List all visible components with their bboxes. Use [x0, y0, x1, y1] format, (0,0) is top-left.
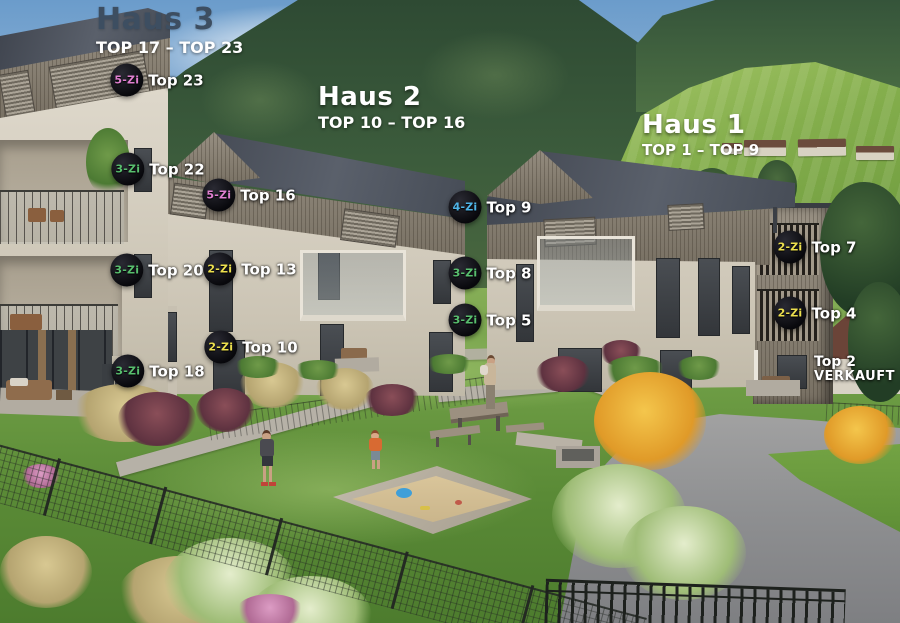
- toddler-figure: [364, 430, 388, 470]
- window: [656, 258, 680, 338]
- purple-shrub: [536, 356, 590, 392]
- haus-3-title: Haus 3: [96, 4, 243, 36]
- visualization-canvas: Haus 3 TOP 17 – TOP 23 Haus 2 TOP 10 – T…: [0, 0, 900, 623]
- haus-1-title: Haus 1: [642, 112, 759, 139]
- yellow-bush: [824, 406, 896, 464]
- unit-rooms-badge: 2-Zi: [774, 297, 807, 330]
- unit-label: Top 5: [487, 311, 532, 329]
- bench-leg: [436, 437, 439, 447]
- unit-rooms-badge: 3-Zi: [449, 257, 482, 290]
- figure-leg: [377, 460, 380, 469]
- purple-shrub: [118, 392, 196, 446]
- unit-marker-top-18[interactable]: 3-Zi Top 18: [111, 355, 204, 388]
- figure-shorts: [262, 456, 273, 466]
- haus-1-header: Haus 1 TOP 1 – TOP 9: [642, 112, 759, 159]
- balcony-chair: [28, 208, 46, 222]
- purple-shrub: [364, 384, 420, 416]
- unit-label: Top 9: [487, 198, 532, 216]
- sold-unit-label: Top 2: [814, 354, 895, 370]
- window: [698, 258, 720, 336]
- hedge: [676, 356, 722, 380]
- unit-rooms-badge-text: 2-Zi: [778, 307, 803, 320]
- haus-1-range: TOP 1 – TOP 9: [642, 143, 759, 159]
- pergola-post: [754, 350, 758, 382]
- haus-3-range: TOP 17 – TOP 23: [96, 40, 243, 57]
- glass-balcony: [300, 250, 406, 321]
- table-leg: [496, 416, 500, 431]
- unit-rooms-badge: 5-Zi: [202, 179, 235, 212]
- adult-with-baby-figure: [477, 355, 501, 415]
- unit-rooms-badge: 3-Zi: [111, 355, 144, 388]
- unit-rooms-badge: 2-Zi: [774, 231, 807, 264]
- unit-label: Top 8: [487, 264, 532, 282]
- unit-marker-top-23[interactable]: 5-Zi Top 23: [110, 64, 203, 97]
- unit-rooms-badge-text: 2-Zi: [207, 263, 232, 276]
- bench-leg: [468, 435, 471, 445]
- toy-shovel: [420, 506, 430, 510]
- farmhouse: [798, 139, 846, 157]
- unit-rooms-badge-text: 3-Zi: [453, 267, 478, 280]
- figure-leg: [269, 466, 272, 482]
- fence-post: [149, 487, 167, 545]
- unit-rooms-badge: 5-Zi: [110, 64, 143, 97]
- unit-marker-top-13[interactable]: 2-Zi Top 13: [203, 253, 296, 286]
- coffee-table: [56, 390, 72, 400]
- unit-label: Top 22: [149, 160, 204, 178]
- unit-marker-top-4[interactable]: 2-Zi Top 4: [774, 297, 857, 330]
- unit-rooms-badge: 2-Zi: [204, 331, 237, 364]
- fence-post: [265, 518, 283, 576]
- unit-label: Top 7: [812, 238, 857, 256]
- unit-rooms-badge: 3-Zi: [111, 153, 144, 186]
- yellow-bush: [594, 372, 706, 470]
- sofa-cushion: [10, 378, 28, 386]
- haus-2-range: TOP 10 – TOP 16: [318, 115, 465, 132]
- toy-red: [455, 500, 462, 505]
- unit-marker-top-22[interactable]: 3-Zi Top 22: [111, 153, 204, 186]
- hedge: [426, 354, 472, 374]
- ornamental-grass: [0, 536, 92, 608]
- figure-legs: [486, 385, 495, 409]
- unit-marker-top-5[interactable]: 3-Zi Top 5: [449, 304, 532, 337]
- red-shoe: [261, 482, 268, 486]
- balcony-furniture: [10, 314, 42, 330]
- window-blind: [667, 203, 704, 231]
- unit-label: Top 18: [149, 362, 204, 380]
- farmhouse: [856, 146, 894, 160]
- purple-shrub: [196, 388, 254, 432]
- toy-parasol: [396, 488, 412, 498]
- unit-rooms-badge: 3-Zi: [449, 304, 482, 337]
- balcony-chair: [50, 210, 64, 222]
- unit-label: Top 20: [148, 261, 203, 279]
- figure-pants: [371, 451, 380, 460]
- unit-rooms-badge-text: 2-Zi: [208, 341, 233, 354]
- figure-leg: [372, 460, 375, 469]
- figure-torso: [369, 438, 382, 451]
- unit-marker-top-7[interactable]: 2-Zi Top 7: [774, 231, 857, 264]
- unit-rooms-badge-text: 3-Zi: [453, 314, 478, 327]
- unit-label: Top 10: [242, 338, 297, 356]
- pink-flowers: [236, 594, 304, 623]
- unit-rooms-badge: 2-Zi: [203, 253, 236, 286]
- unit-label: Top 4: [812, 304, 857, 322]
- unit-rooms-badge-text: 3-Zi: [114, 264, 139, 277]
- figure-torso: [260, 439, 274, 457]
- fence-post: [516, 585, 534, 623]
- hedge: [294, 360, 342, 380]
- planter-inner: [562, 449, 594, 461]
- child-figure: [254, 430, 280, 488]
- haus-2-title: Haus 2: [318, 84, 465, 111]
- unit-rooms-badge-text: 5-Zi: [114, 74, 139, 87]
- fence-rail: [545, 590, 845, 602]
- unit-label: Top 16: [240, 186, 295, 204]
- baby: [480, 365, 488, 375]
- glass-balcony: [537, 236, 635, 311]
- fence-post: [391, 551, 409, 609]
- unit-rooms-badge: 4-Zi: [449, 191, 482, 224]
- haus-2-header: Haus 2 TOP 10 – TOP 16: [318, 84, 465, 132]
- haus-3-header: Haus 3 TOP 17 – TOP 23: [96, 4, 243, 56]
- unit-rooms-badge-text: 2-Zi: [778, 241, 803, 254]
- unit-marker-top-20[interactable]: 3-Zi Top 20: [110, 254, 203, 287]
- red-shoe: [269, 482, 276, 486]
- canopy-post: [773, 207, 777, 233]
- figure-leg: [263, 466, 266, 482]
- unit-marker-top-2-sold[interactable]: Top 2 VERKAUFT: [814, 354, 895, 385]
- sold-unit-status: VERKAUFT: [814, 370, 895, 385]
- fence-post: [43, 458, 61, 516]
- unit-marker-top-9[interactable]: 4-Zi Top 9: [449, 191, 532, 224]
- unit-marker-top-8[interactable]: 3-Zi Top 8: [449, 257, 532, 290]
- terrace-pavers: [746, 380, 800, 396]
- unit-rooms-badge: 3-Zi: [110, 254, 143, 287]
- window: [732, 266, 750, 334]
- unit-rooms-badge-text: 4-Zi: [453, 201, 478, 214]
- unit-label: Top 13: [241, 260, 296, 278]
- unit-label: Top 23: [148, 71, 203, 89]
- unit-rooms-badge-text: 3-Zi: [115, 163, 140, 176]
- unit-rooms-badge-text: 3-Zi: [115, 365, 140, 378]
- unit-marker-top-10[interactable]: 2-Zi Top 10: [204, 331, 297, 364]
- unit-marker-top-16[interactable]: 5-Zi Top 16: [202, 179, 295, 212]
- unit-rooms-badge-text: 5-Zi: [206, 189, 231, 202]
